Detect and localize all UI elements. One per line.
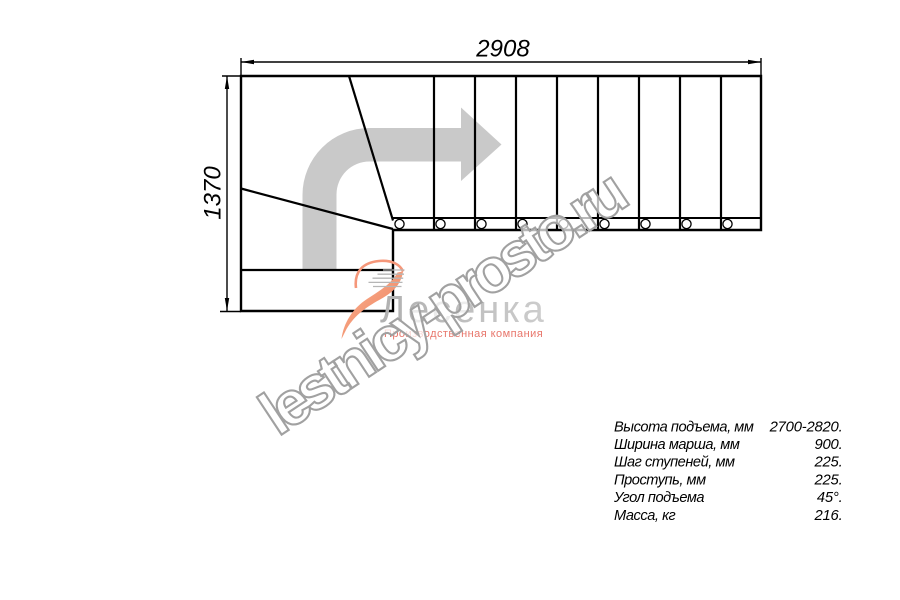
svg-text:900.: 900.	[815, 437, 843, 453]
svg-text:Ширина марша, мм: Ширина марша, мм	[614, 437, 740, 453]
svg-text:45°.: 45°.	[817, 490, 843, 506]
svg-text:2908: 2908	[475, 36, 530, 63]
svg-text:Шаг ступеней, мм: Шаг ступеней, мм	[614, 455, 735, 471]
svg-text:Угол подъема: Угол подъема	[613, 490, 704, 506]
svg-text:2700-2820.: 2700-2820.	[769, 419, 843, 435]
svg-text:Высота подъема, мм: Высота подъема, мм	[614, 419, 754, 435]
svg-text:Проступь, мм: Проступь, мм	[614, 472, 706, 488]
svg-text:216.: 216.	[814, 508, 843, 524]
svg-text:1370: 1370	[200, 166, 227, 220]
svg-text:225.: 225.	[814, 472, 843, 488]
svg-text:225.: 225.	[814, 455, 843, 471]
svg-text:Масса, кг: Масса, кг	[614, 508, 676, 524]
